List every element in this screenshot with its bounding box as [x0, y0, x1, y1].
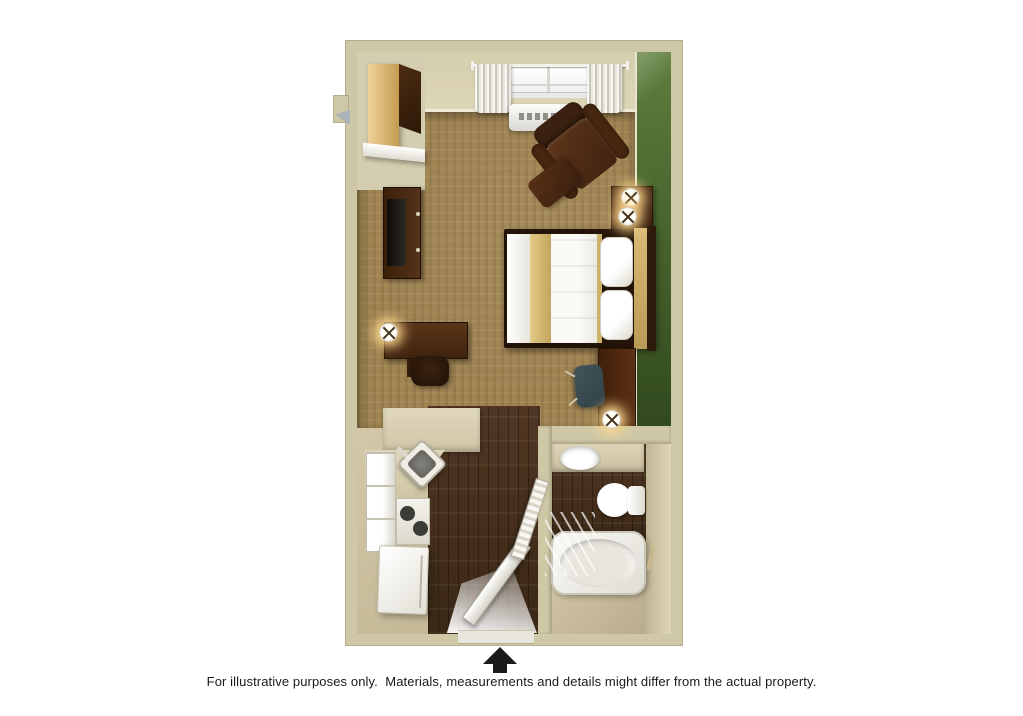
headboard-panel — [634, 228, 647, 349]
bed-foot-linen — [507, 234, 530, 343]
bed-duvet — [551, 234, 600, 343]
kitchen-cabinet-column — [366, 452, 396, 552]
tv-stand-knob — [416, 212, 420, 216]
bathroom-right-wall-face — [646, 444, 671, 634]
bed-pillow — [600, 290, 633, 340]
shower-glass — [545, 512, 595, 576]
window — [509, 64, 589, 94]
curtain-left — [475, 64, 511, 113]
entry-threshold — [458, 630, 534, 644]
tv — [387, 199, 406, 266]
closet-shelving-unit — [399, 64, 421, 134]
task-chair — [573, 364, 606, 409]
wardrobe-closet — [368, 64, 399, 148]
desk-lamp — [602, 410, 621, 429]
headboard-frame — [647, 226, 656, 351]
refrigerator — [377, 545, 429, 615]
tv-stand-knob — [416, 248, 420, 252]
bed-pillow — [600, 237, 633, 287]
floorplan-screenshot: For illustrative purposes only. Material… — [0, 0, 1023, 716]
desk-chair — [411, 356, 449, 386]
disclaimer-text: For illustrative purposes only. Material… — [0, 674, 1023, 689]
desk-lamp — [379, 323, 398, 342]
kitchen-counter — [383, 408, 480, 452]
north-arrow-icon — [493, 663, 507, 673]
bathroom-top-wall — [538, 426, 671, 444]
bed-runner — [530, 234, 551, 343]
north-arrow-icon — [483, 647, 517, 664]
vanity-sink — [560, 446, 600, 470]
table-lamp — [618, 207, 637, 226]
table-lamp — [621, 188, 640, 207]
toilet-tank — [628, 486, 645, 515]
toilet-bowl — [597, 483, 632, 517]
stove-burner — [413, 521, 428, 536]
stove-burner — [400, 506, 415, 521]
